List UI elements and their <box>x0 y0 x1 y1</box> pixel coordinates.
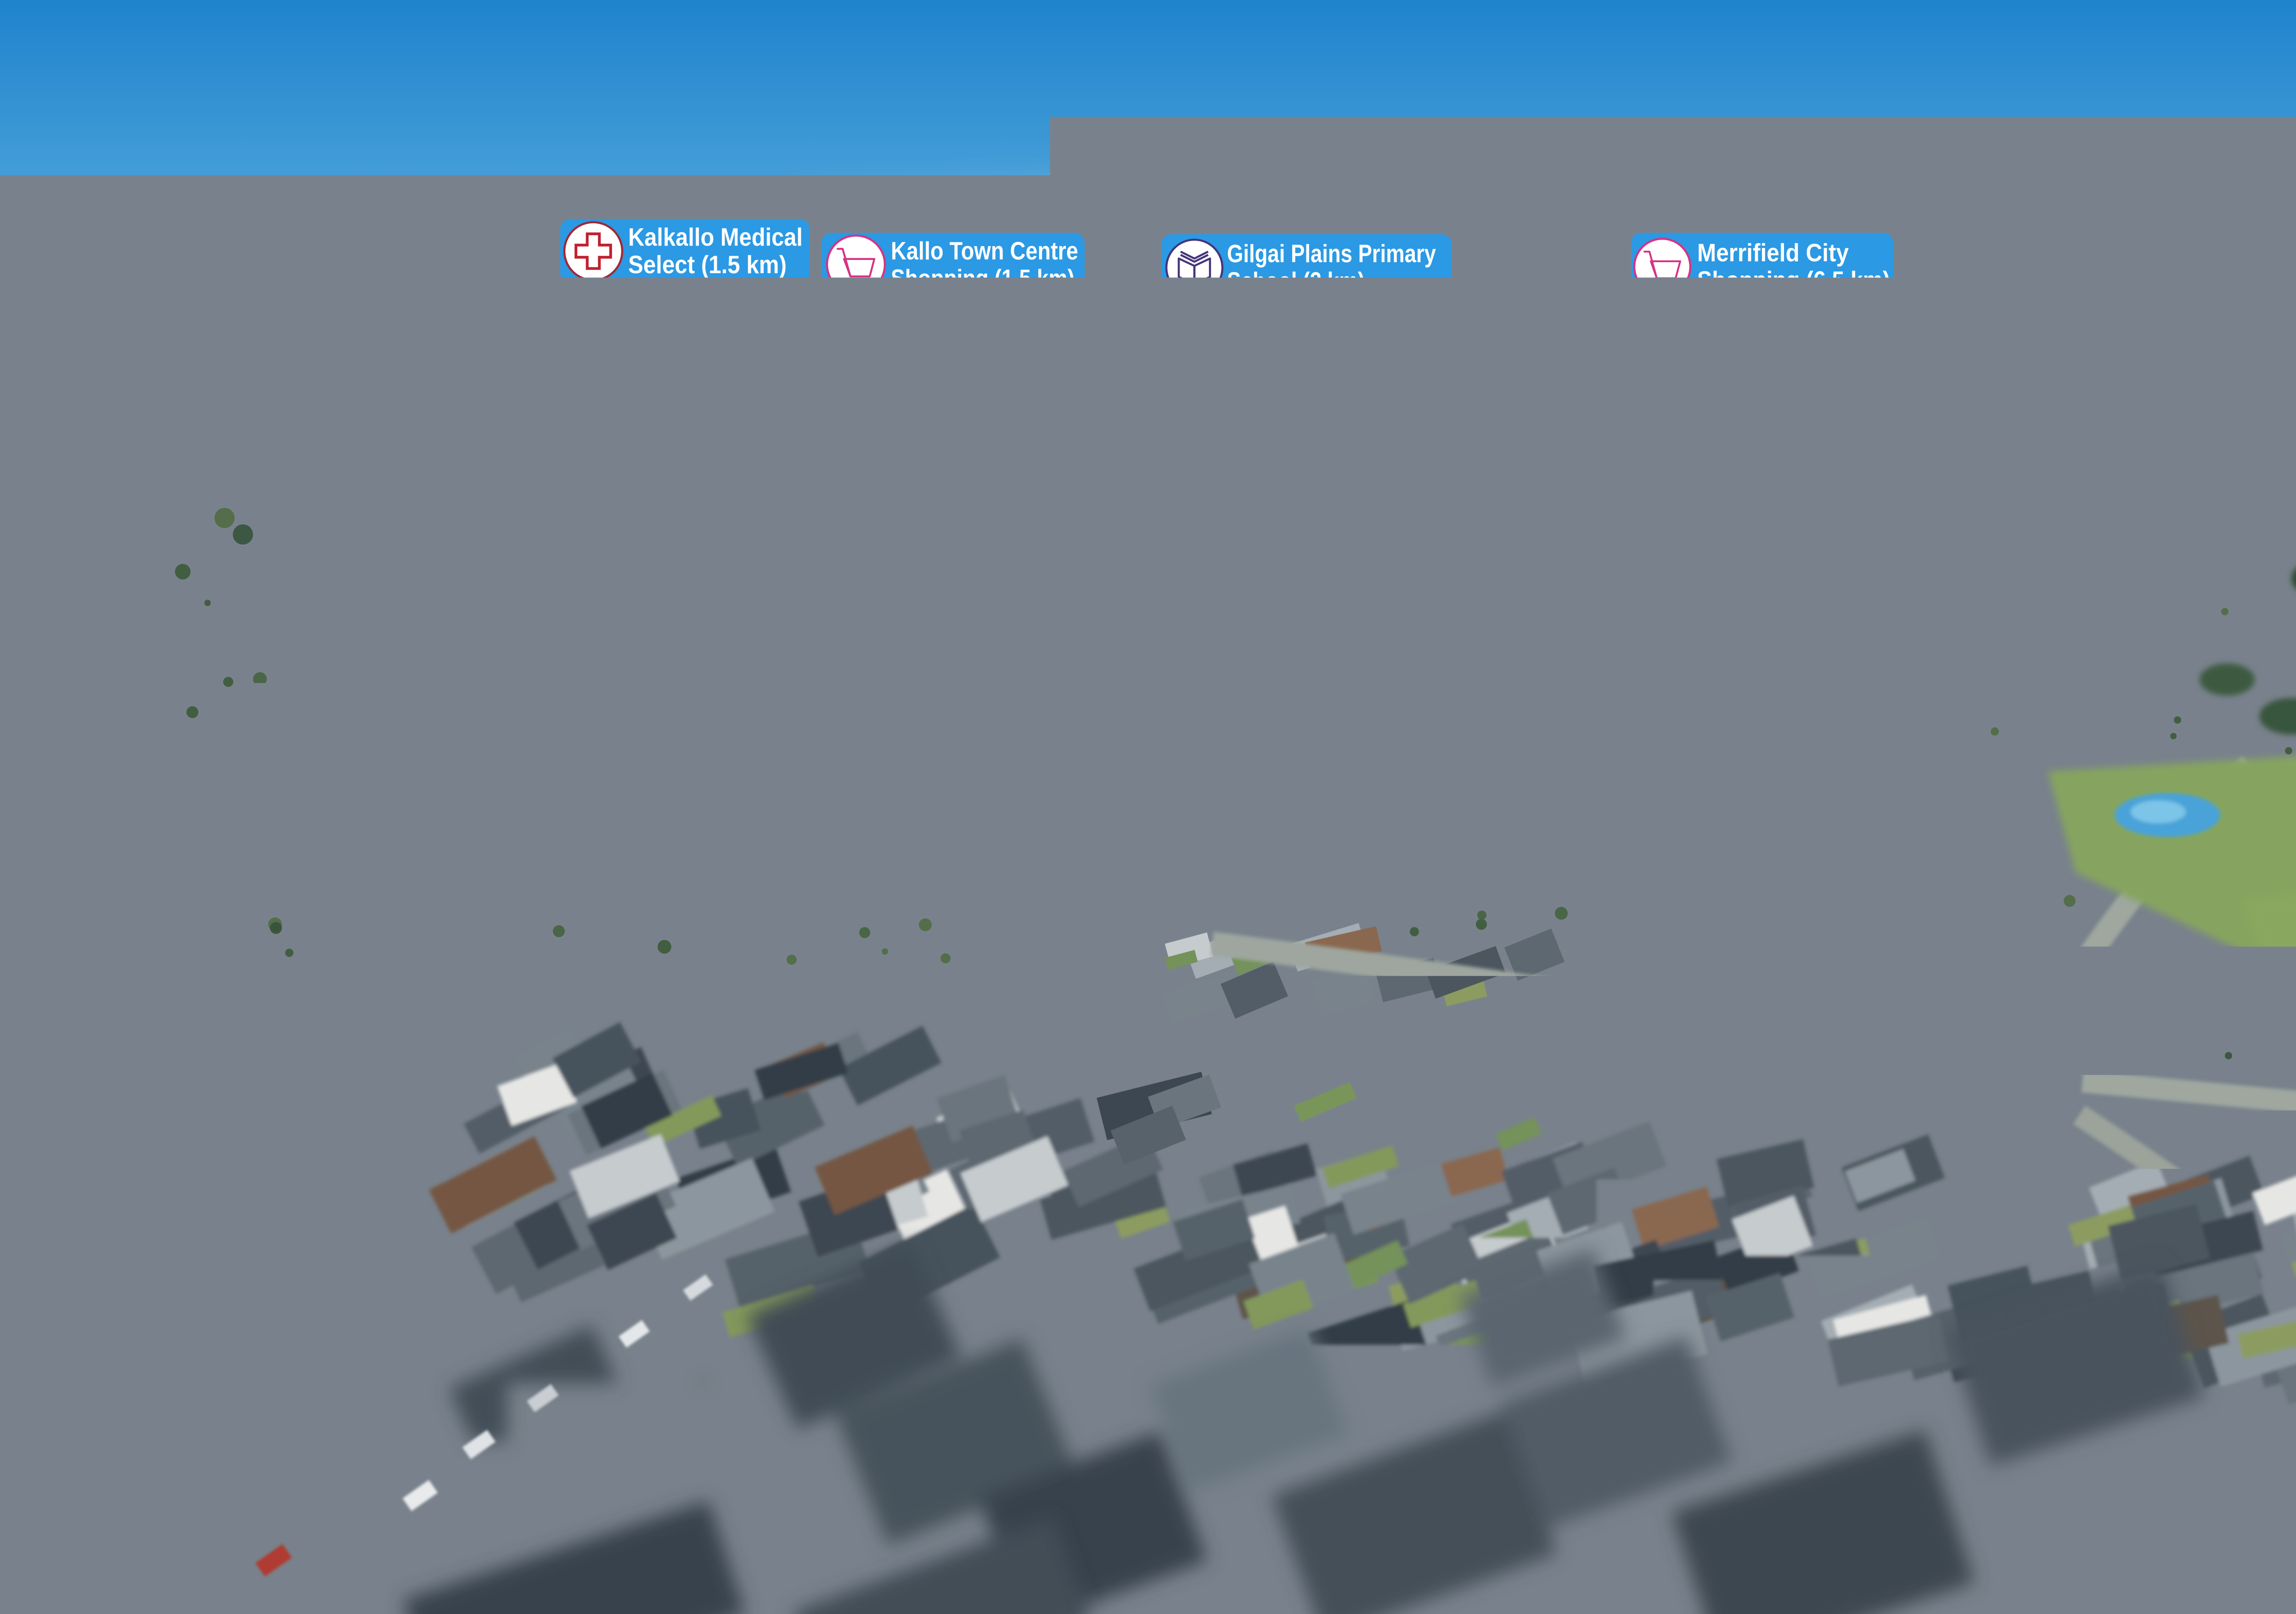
svg-text:Select (1.5 km): Select (1.5 km) <box>628 250 787 279</box>
svg-text:THE LANCORE: THE LANCORE <box>1920 1395 2296 1487</box>
svg-text:Gilgai Plains Primary: Gilgai Plains Primary <box>1227 239 1436 268</box>
svg-text:Hume Anglican Grammar: Hume Anglican Grammar <box>1364 333 1621 362</box>
svg-text:Playground: Playground <box>133 684 314 725</box>
svg-text:WEST & NORTH: WEST & NORTH <box>1955 1500 2296 1560</box>
svg-text:School (2 km): School (2 km) <box>1227 267 1365 295</box>
svg-text:Kalkallo Campus (2 km): Kalkallo Campus (2 km) <box>1364 361 1609 389</box>
svg-text:Kalkallo Medical: Kalkallo Medical <box>628 223 803 251</box>
svg-text:Shopping (1.5 km): Shopping (1.5 km) <box>891 264 1075 292</box>
svg-text:3 Werriberri St Kalkallo: 3 Werriberri St Kalkallo <box>889 987 1354 1034</box>
svg-text:Shopping (6.5 km): Shopping (6.5 km) <box>1697 266 1890 294</box>
svg-text:Centre (1.5 km): Centre (1.5 km) <box>960 348 1120 376</box>
svg-text:THE LANCORE: THE LANCORE <box>1042 1045 1219 1076</box>
svg-text:Merrifield City: Merrifield City <box>1697 238 1849 267</box>
svg-text:Kindergarten Kalkallo (1.5 km): Kindergarten Kalkallo (1.5 km) <box>425 340 746 369</box>
svg-text:Bells Reserve: Bells Reserve <box>133 638 354 679</box>
svg-text:Kallo Town Centre: Kallo Town Centre <box>891 236 1078 265</box>
svg-text:WEST & NORTH: WEST & NORTH <box>1055 1086 1199 1108</box>
svg-text:Kalkallo Community: Kalkallo Community <box>960 320 1164 349</box>
svg-text:Aspire Early Education &: Aspire Early Education & <box>425 313 689 341</box>
